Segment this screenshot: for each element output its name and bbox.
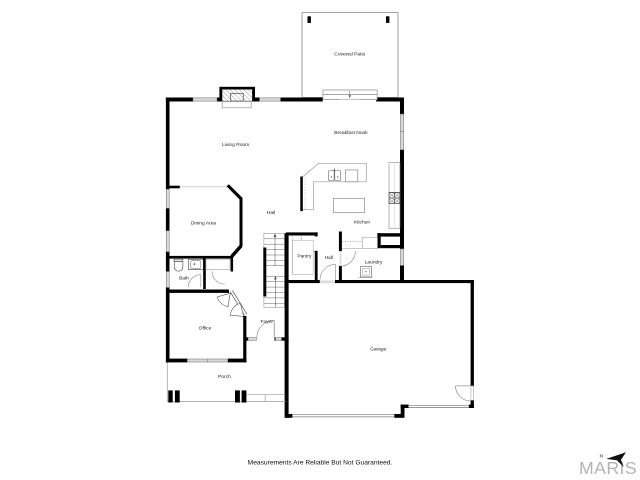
svg-text:Hall: Hall bbox=[325, 255, 333, 261]
svg-text:MARIS: MARIS bbox=[579, 458, 637, 478]
svg-text:Porch: Porch bbox=[218, 374, 231, 380]
svg-text:Pantry: Pantry bbox=[297, 254, 312, 260]
svg-text:Office: Office bbox=[199, 326, 212, 332]
svg-text:Garage: Garage bbox=[370, 346, 387, 352]
svg-text:Kitchen: Kitchen bbox=[354, 219, 371, 225]
svg-text:Measurements Are Reliable But: Measurements Are Reliable But Not Guaran… bbox=[248, 460, 393, 467]
svg-text:Hall: Hall bbox=[267, 210, 275, 216]
svg-text:Laundry: Laundry bbox=[365, 259, 383, 265]
svg-text:Foyer: Foyer bbox=[261, 319, 274, 325]
svg-text:Breakfast Nook: Breakfast Nook bbox=[334, 130, 368, 136]
svg-text:Dining Area: Dining Area bbox=[191, 220, 217, 226]
svg-text:Living Room: Living Room bbox=[222, 142, 249, 148]
svg-text:Covered Patio: Covered Patio bbox=[334, 52, 365, 58]
svg-text:Bath: Bath bbox=[179, 275, 189, 281]
svg-text:N: N bbox=[599, 453, 603, 458]
